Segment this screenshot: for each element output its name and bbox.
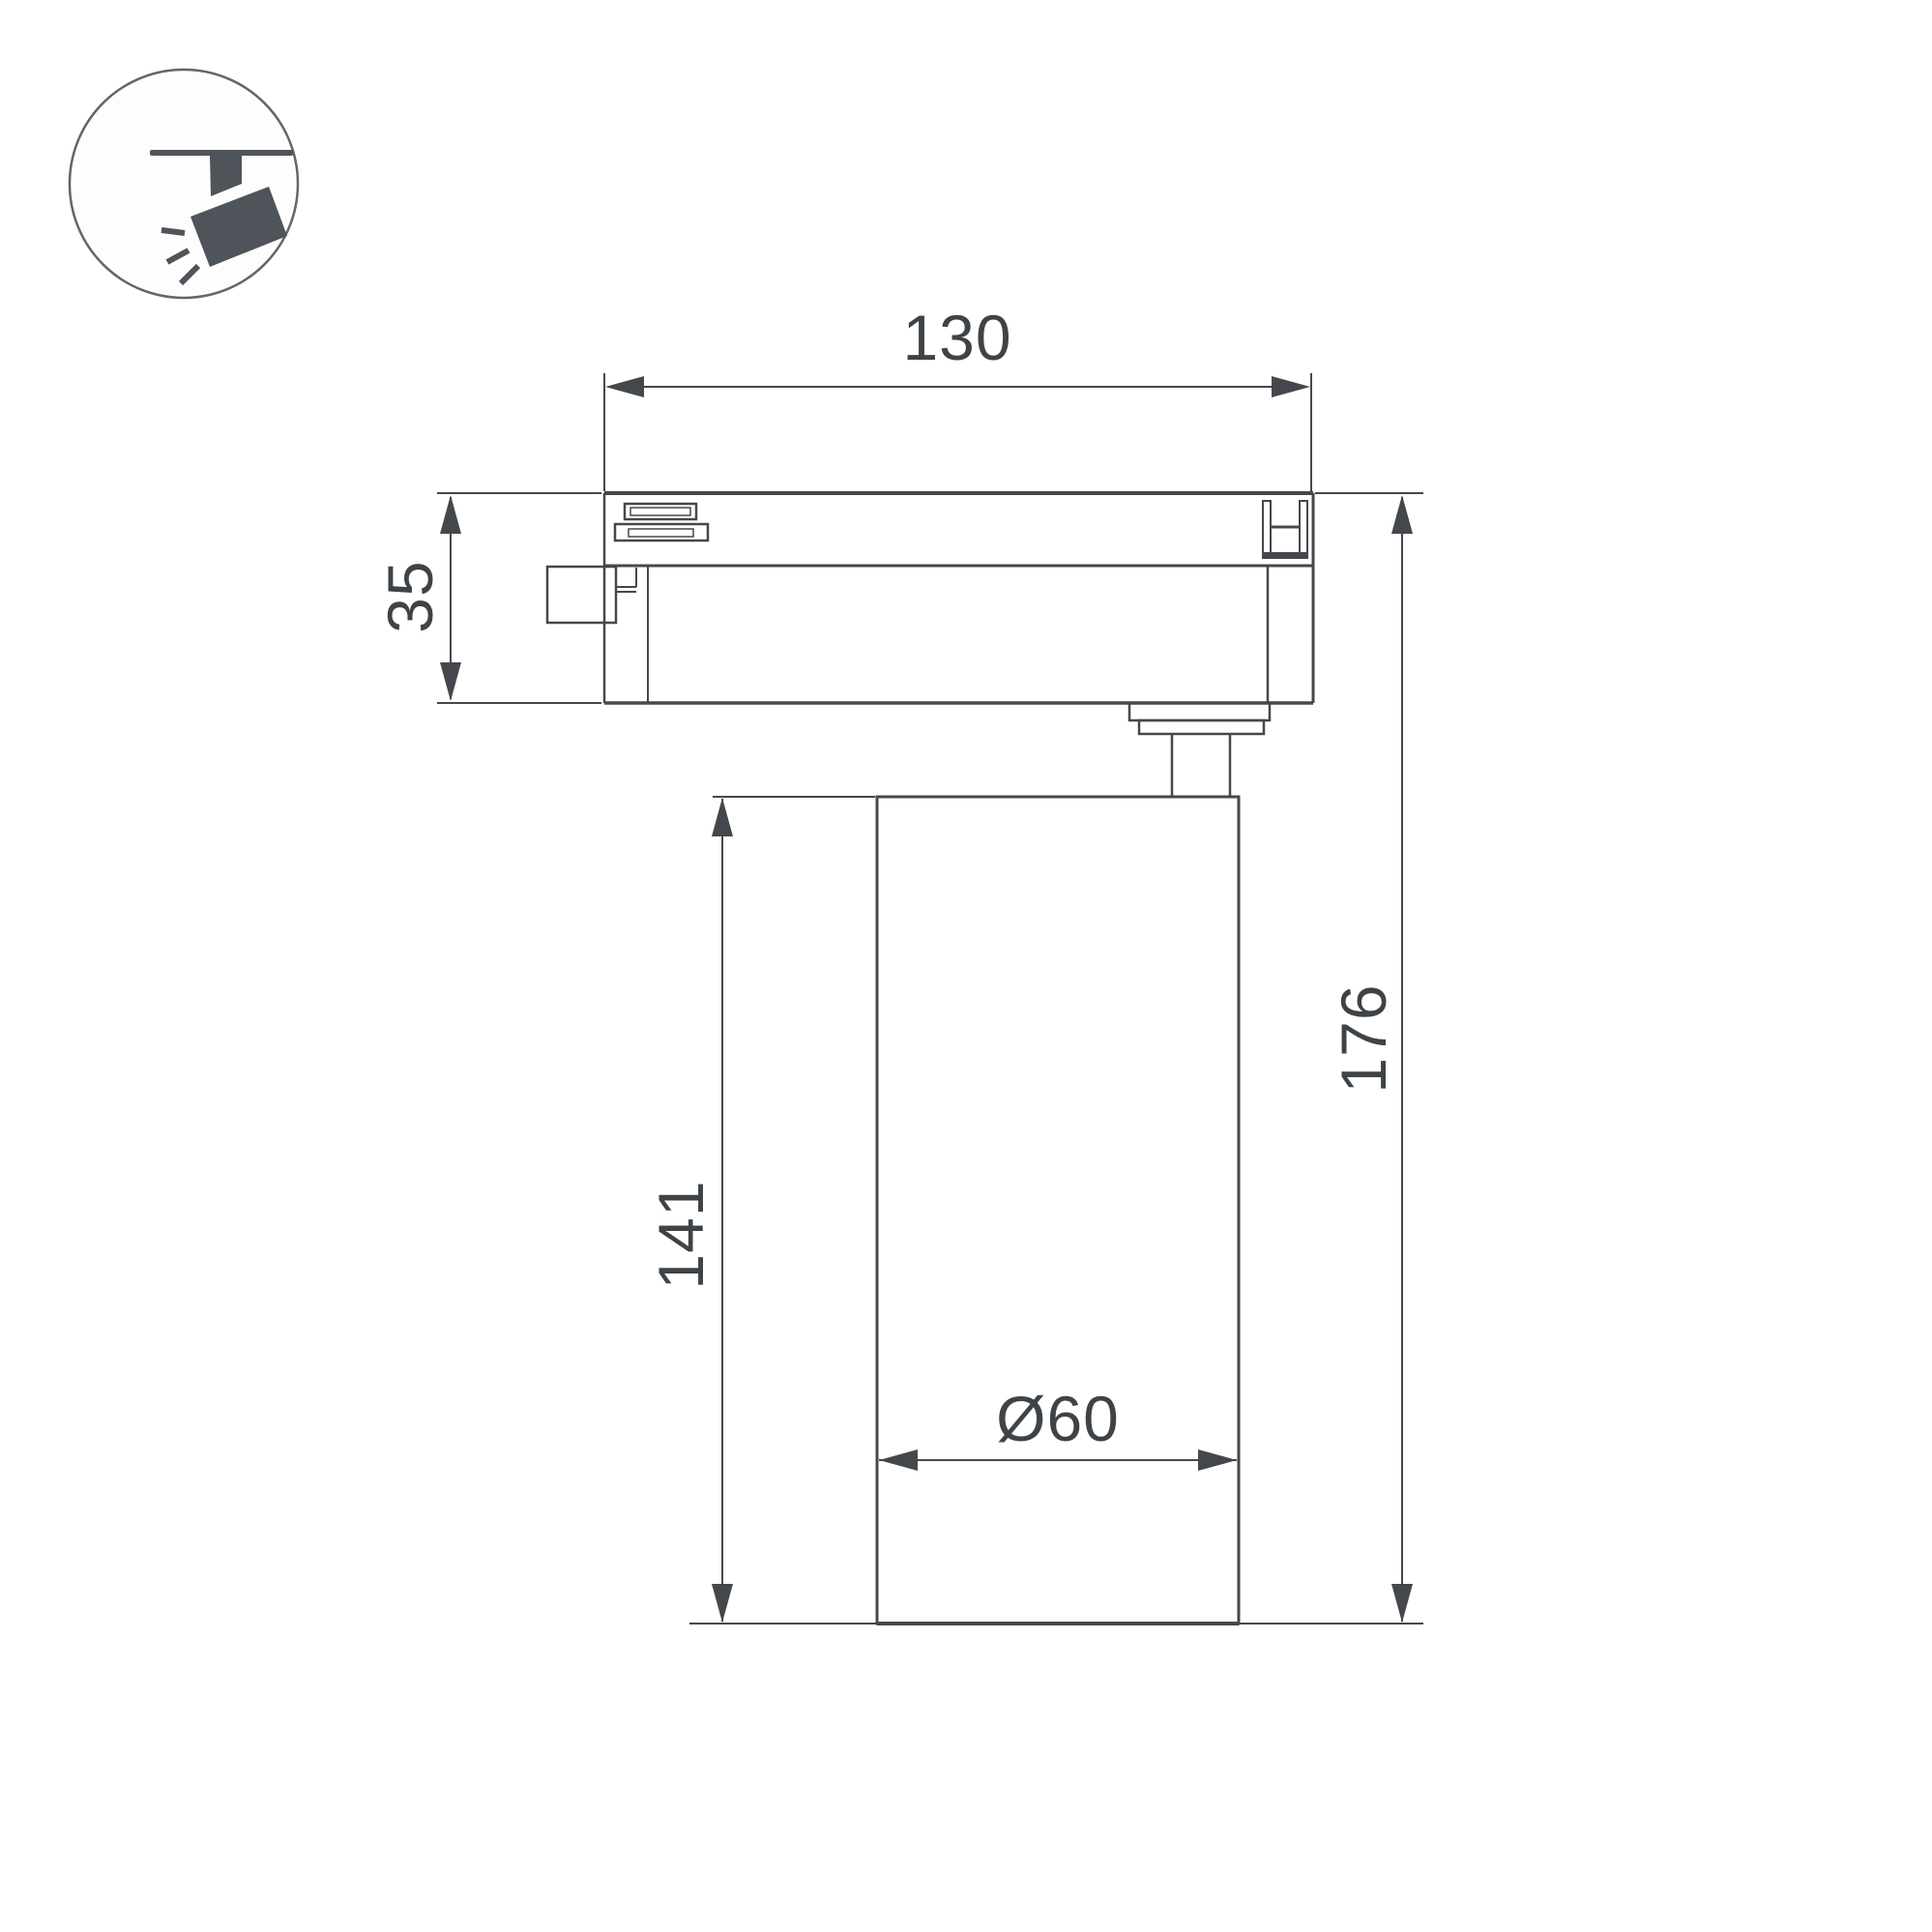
lamp-body xyxy=(877,797,1239,1624)
adapter-contact-clips xyxy=(615,504,708,541)
dim-label-total-height: 176 xyxy=(1328,983,1399,1093)
technical-drawing-page: 130 35 141 176 Ø60 xyxy=(0,0,1932,1932)
adapter-lock-knob xyxy=(547,567,636,623)
dim-label-adapter-height: 35 xyxy=(374,560,446,632)
icon-circle-border xyxy=(70,70,298,298)
dim-adapter-height: 35 xyxy=(374,493,601,703)
adapter-latch xyxy=(1263,501,1307,559)
dim-label-track-width: 130 xyxy=(902,302,1011,373)
track-spotlight-dimension-drawing: 130 35 141 176 Ø60 xyxy=(0,0,1932,1932)
dim-track-width: 130 xyxy=(604,302,1311,491)
dim-body-height: 141 xyxy=(645,797,875,1623)
dim-label-body-diameter: Ø60 xyxy=(996,1383,1120,1454)
dim-label-body-height: 141 xyxy=(645,1180,717,1289)
dim-body-diameter: Ø60 xyxy=(879,1383,1237,1471)
track-spotlight-icon xyxy=(70,70,298,298)
track-adapter-outline xyxy=(547,493,1313,703)
mount-stem xyxy=(1129,703,1270,797)
